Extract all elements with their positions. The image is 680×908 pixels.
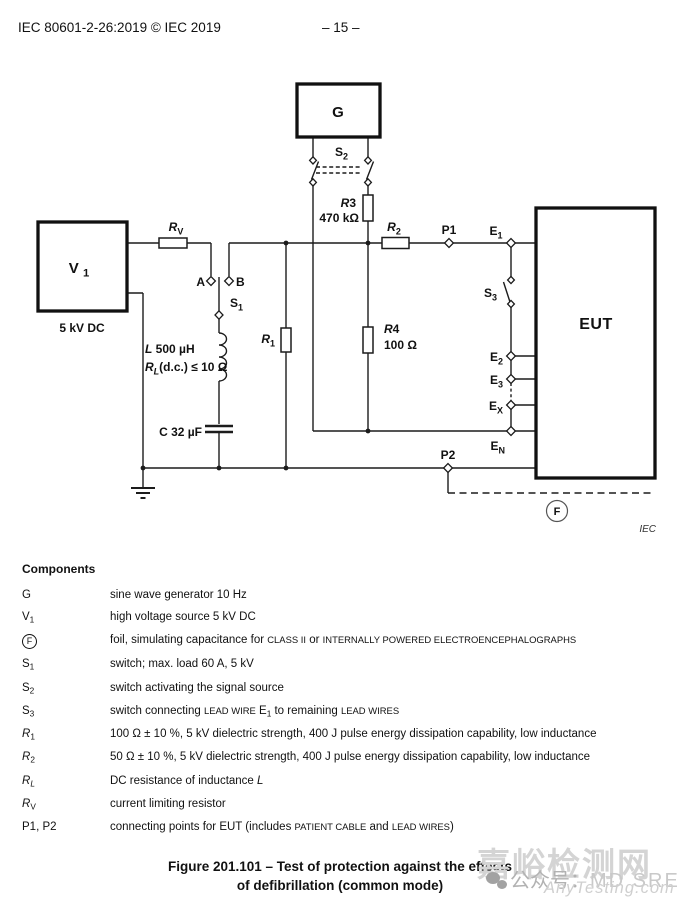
ex-label: EX bbox=[489, 399, 503, 416]
v1-rating-label: 5 kV DC bbox=[59, 321, 105, 335]
ground-symbol bbox=[131, 468, 155, 498]
component-row: S1switch; max. load 60 A, 5 kV bbox=[22, 658, 670, 672]
rv-label: RV bbox=[169, 220, 184, 237]
connection-point-e1 bbox=[507, 239, 516, 248]
component-symbol: S1 bbox=[22, 658, 110, 672]
e1-label: E1 bbox=[489, 224, 502, 241]
en-label: EN bbox=[490, 439, 505, 456]
component-description: current limiting resistor bbox=[110, 798, 670, 810]
r3-value-label: 470 kΩ bbox=[319, 211, 359, 225]
p2-label: P2 bbox=[441, 448, 456, 462]
foil-label: F bbox=[554, 506, 561, 518]
r1-label: R1 bbox=[261, 332, 275, 349]
component-row: Gsine wave generator 10 Hz bbox=[22, 589, 670, 601]
switch-s3 bbox=[504, 276, 515, 307]
component-description: switch activating the signal source bbox=[110, 682, 670, 694]
resistor-r3 bbox=[363, 195, 373, 221]
s2-label: S2 bbox=[335, 145, 348, 162]
component-symbol: RL bbox=[22, 775, 110, 789]
resistor-r1 bbox=[281, 328, 291, 352]
eut-label: EUT bbox=[579, 316, 613, 333]
r4-value-label: 100 Ω bbox=[384, 338, 417, 352]
resistor-r2 bbox=[382, 238, 409, 249]
component-description: switch; max. load 60 A, 5 kV bbox=[110, 658, 670, 670]
component-symbol: R1 bbox=[22, 728, 110, 742]
inductor-value-label: L 500 µH bbox=[145, 342, 195, 356]
figure-caption-line2: of defibrillation (common mode) bbox=[0, 876, 680, 895]
r2-label: R2 bbox=[387, 220, 401, 237]
iec-mark: IEC bbox=[639, 524, 656, 535]
component-description: high voltage source 5 kV DC bbox=[110, 611, 670, 623]
component-symbol: F bbox=[22, 634, 110, 649]
resistor-rv bbox=[159, 238, 187, 248]
point-a-label: A bbox=[196, 275, 205, 289]
component-description: sine wave generator 10 Hz bbox=[110, 589, 670, 601]
s3-label: S3 bbox=[484, 286, 497, 303]
rl-value-label: RL(d.c.) ≤ 10 Ω bbox=[145, 360, 228, 377]
connection-point-a bbox=[207, 277, 216, 286]
component-description: 50 Ω ± 10 %, 5 kV dielectric strength, 4… bbox=[110, 751, 670, 763]
connection-point-p2 bbox=[444, 464, 453, 473]
figure-caption-line1: Figure 201.101 – Test of protection agai… bbox=[0, 857, 680, 876]
component-row: S3switch connecting LEAD WIRE E1 to rema… bbox=[22, 705, 670, 719]
connection-point-en bbox=[507, 427, 516, 436]
figure-caption: Figure 201.101 – Test of protection agai… bbox=[0, 857, 680, 895]
r4-label: R4 bbox=[384, 322, 400, 336]
p1-label: P1 bbox=[442, 223, 457, 237]
component-symbol: V1 bbox=[22, 611, 110, 625]
component-row: RVcurrent limiting resistor bbox=[22, 798, 670, 812]
component-row: P1, P2connecting points for EUT (include… bbox=[22, 821, 670, 833]
circuit-diagram: V 1 5 kV DC RV A B S1 L 500 µH RL(d.c.) … bbox=[0, 0, 680, 545]
component-row: Ffoil, simulating capacitance for CLASS … bbox=[22, 634, 670, 649]
component-description: connecting points for EUT (includes PATI… bbox=[110, 821, 670, 833]
switch-s2 bbox=[310, 157, 374, 186]
component-symbol: S3 bbox=[22, 705, 110, 719]
component-symbol: RV bbox=[22, 798, 110, 812]
r3-label: R3 bbox=[341, 196, 357, 210]
component-description: DC resistance of inductance L bbox=[110, 775, 670, 787]
component-row: V1high voltage source 5 kV DC bbox=[22, 611, 670, 625]
connection-point-e3 bbox=[507, 375, 516, 384]
connection-point-p1 bbox=[445, 239, 454, 248]
document-page: IEC 80601-2-26:2019 © IEC 2019 – 15 – bbox=[0, 0, 680, 908]
component-description: 100 Ω ± 10 %, 5 kV dielectric strength, … bbox=[110, 728, 670, 740]
generator-label: G bbox=[332, 104, 344, 121]
connection-point-e2 bbox=[507, 352, 516, 361]
components-list: Gsine wave generator 10 HzV1high voltage… bbox=[22, 589, 670, 833]
switch-s1 bbox=[215, 277, 223, 319]
capacitor-value-label: C 32 µF bbox=[159, 425, 202, 439]
component-row: R250 Ω ± 10 %, 5 kV dielectric strength,… bbox=[22, 751, 670, 765]
component-row: R1100 Ω ± 10 %, 5 kV dielectric strength… bbox=[22, 728, 670, 742]
e2-label: E2 bbox=[490, 350, 503, 367]
e3-label: E3 bbox=[490, 373, 503, 390]
component-symbol: G bbox=[22, 589, 110, 601]
capacitor-c bbox=[205, 426, 233, 432]
resistor-r4 bbox=[363, 327, 373, 353]
connection-point-b bbox=[225, 277, 234, 286]
s1-label: S1 bbox=[230, 296, 243, 313]
point-b-label: B bbox=[236, 275, 245, 289]
component-description: foil, simulating capacitance for CLASS I… bbox=[110, 634, 670, 646]
component-symbol: S2 bbox=[22, 682, 110, 696]
component-description: switch connecting LEAD WIRE E1 to remain… bbox=[110, 705, 670, 719]
components-title: Components bbox=[22, 562, 670, 576]
component-symbol: P1, P2 bbox=[22, 821, 110, 833]
component-row: S2switch activating the signal source bbox=[22, 682, 670, 696]
s2-linkage-dashed bbox=[316, 167, 361, 173]
components-section: Components Gsine wave generator 10 HzV1h… bbox=[22, 562, 670, 843]
component-row: RLDC resistance of inductance L bbox=[22, 775, 670, 789]
eut-box bbox=[536, 208, 655, 478]
connection-point-ex bbox=[507, 401, 516, 410]
wire-group bbox=[127, 137, 536, 493]
component-symbol: R2 bbox=[22, 751, 110, 765]
